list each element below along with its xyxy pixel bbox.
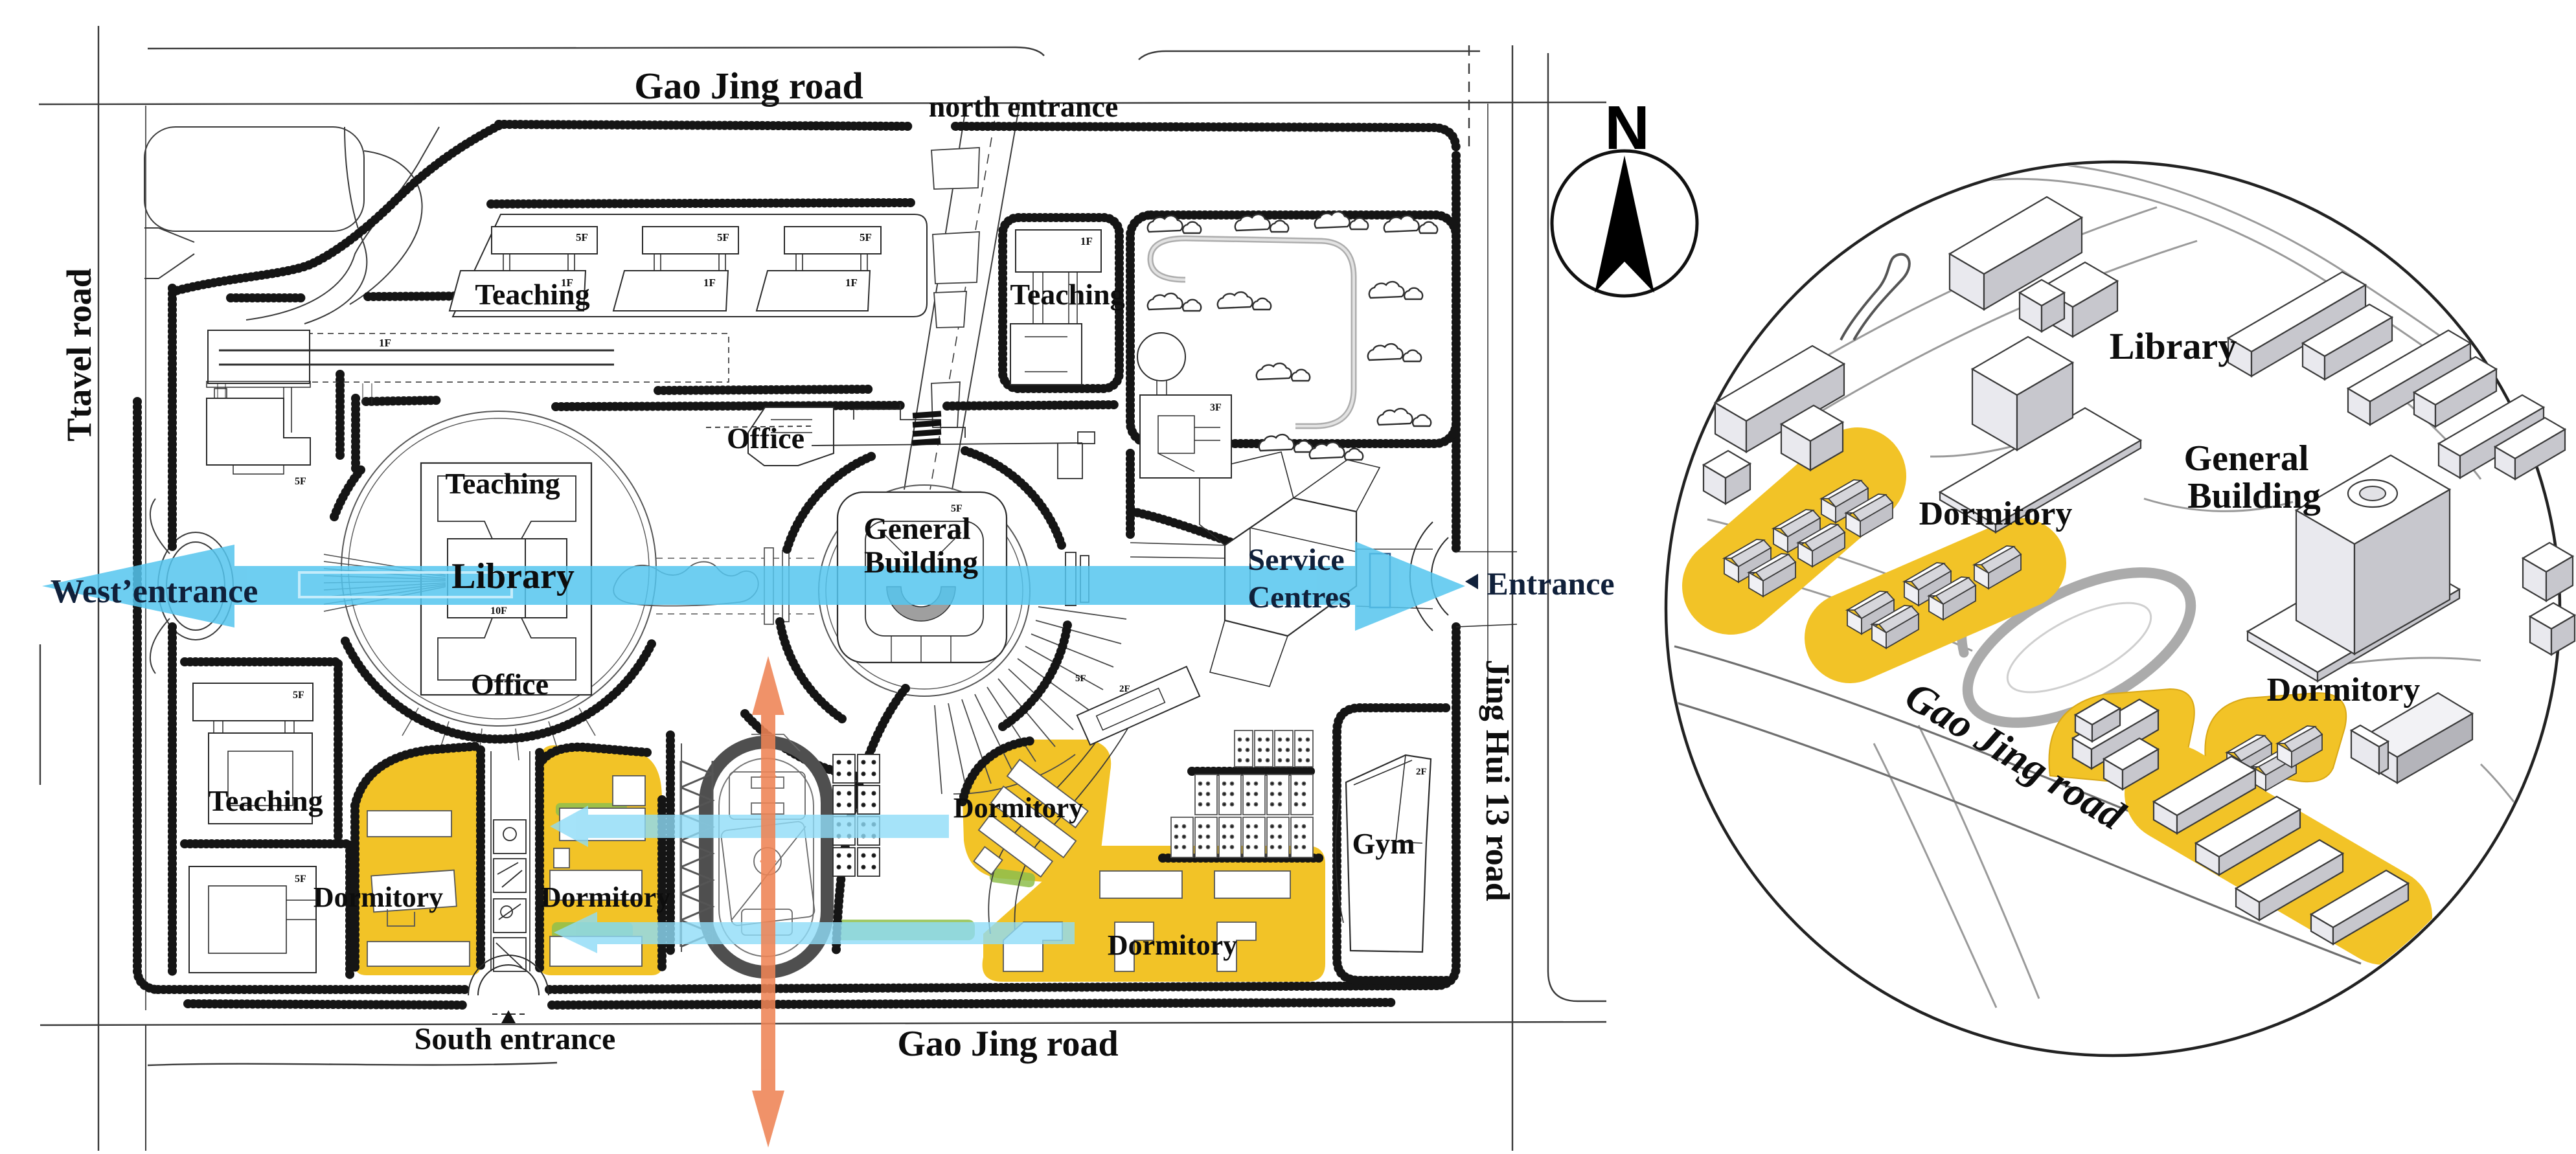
svg-text:2F: 2F <box>1119 684 1130 694</box>
svg-text:Dormitory: Dormitory <box>953 792 1083 824</box>
svg-text:Dormitory: Dormitory <box>2267 672 2421 708</box>
svg-text:N: N <box>1604 93 1649 163</box>
svg-text:2F: 2F <box>1416 767 1427 777</box>
svg-text:Library: Library <box>2110 325 2237 367</box>
svg-text:1F: 1F <box>703 277 716 289</box>
svg-text:Building: Building <box>2187 476 2320 516</box>
svg-text:General: General <box>2184 438 2309 479</box>
svg-text:5F: 5F <box>1075 673 1086 684</box>
svg-text:Gao Jing road: Gao Jing road <box>897 1024 1118 1064</box>
svg-text:Building: Building <box>864 545 978 580</box>
svg-text:Teaching: Teaching <box>475 278 589 311</box>
svg-text:5F: 5F <box>295 476 306 487</box>
svg-text:1F: 1F <box>379 337 391 349</box>
svg-text:5F: 5F <box>860 231 872 243</box>
svg-text:Centres: Centres <box>1248 580 1351 615</box>
svg-text:Teaching: Teaching <box>445 467 560 500</box>
svg-text:Library: Library <box>451 556 575 596</box>
svg-text:Service: Service <box>1248 543 1344 577</box>
svg-text:3F: 3F <box>1210 402 1222 413</box>
svg-text:5F: 5F <box>717 231 729 243</box>
svg-text:Gym: Gym <box>1352 827 1415 860</box>
svg-text:1F: 1F <box>845 277 858 289</box>
svg-text:north entrance: north entrance <box>929 90 1119 123</box>
svg-text:5F: 5F <box>295 874 306 885</box>
svg-text:Ttavel road: Ttavel road <box>60 268 98 442</box>
svg-text:South entrance: South entrance <box>415 1022 616 1056</box>
svg-text:Dormitory: Dormitory <box>313 881 443 913</box>
svg-text:1F: 1F <box>1080 235 1093 247</box>
svg-text:General: General <box>863 512 970 546</box>
svg-text:Office: Office <box>727 422 804 455</box>
svg-text:Teaching: Teaching <box>208 784 323 817</box>
svg-text:Dormitory: Dormitory <box>1919 495 2073 532</box>
svg-text:10F: 10F <box>490 605 507 617</box>
svg-text:Jing Hui 13 road: Jing Hui 13 road <box>1479 659 1516 901</box>
svg-text:Office: Office <box>471 668 549 701</box>
svg-text:Dormitory: Dormitory <box>541 881 670 913</box>
svg-text:5F: 5F <box>576 231 588 243</box>
svg-text:Dormitory: Dormitory <box>1108 929 1237 961</box>
svg-text:Gao Jing road: Gao Jing road <box>634 65 863 107</box>
svg-text:5F: 5F <box>293 690 304 701</box>
svg-text:Entrance: Entrance <box>1487 565 1614 602</box>
svg-text:Teaching: Teaching <box>1010 278 1124 311</box>
svg-text:West’entrance: West’entrance <box>51 573 258 610</box>
